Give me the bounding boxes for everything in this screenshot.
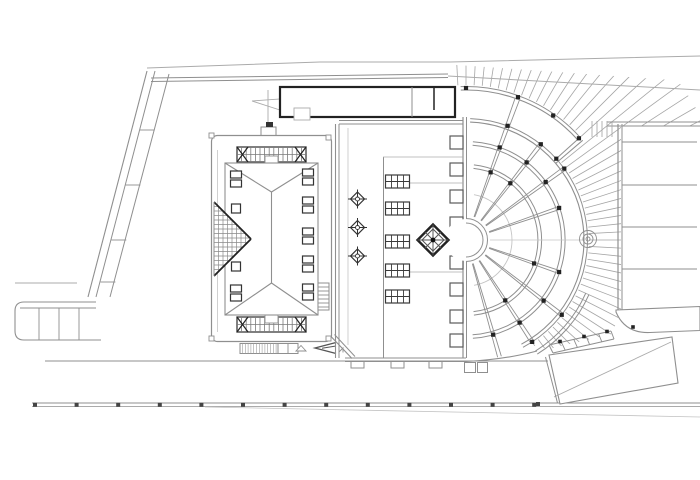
site-plan-canvas — [0, 0, 700, 480]
main-hall-roof — [209, 133, 336, 354]
site-plan-drawing — [0, 0, 700, 480]
